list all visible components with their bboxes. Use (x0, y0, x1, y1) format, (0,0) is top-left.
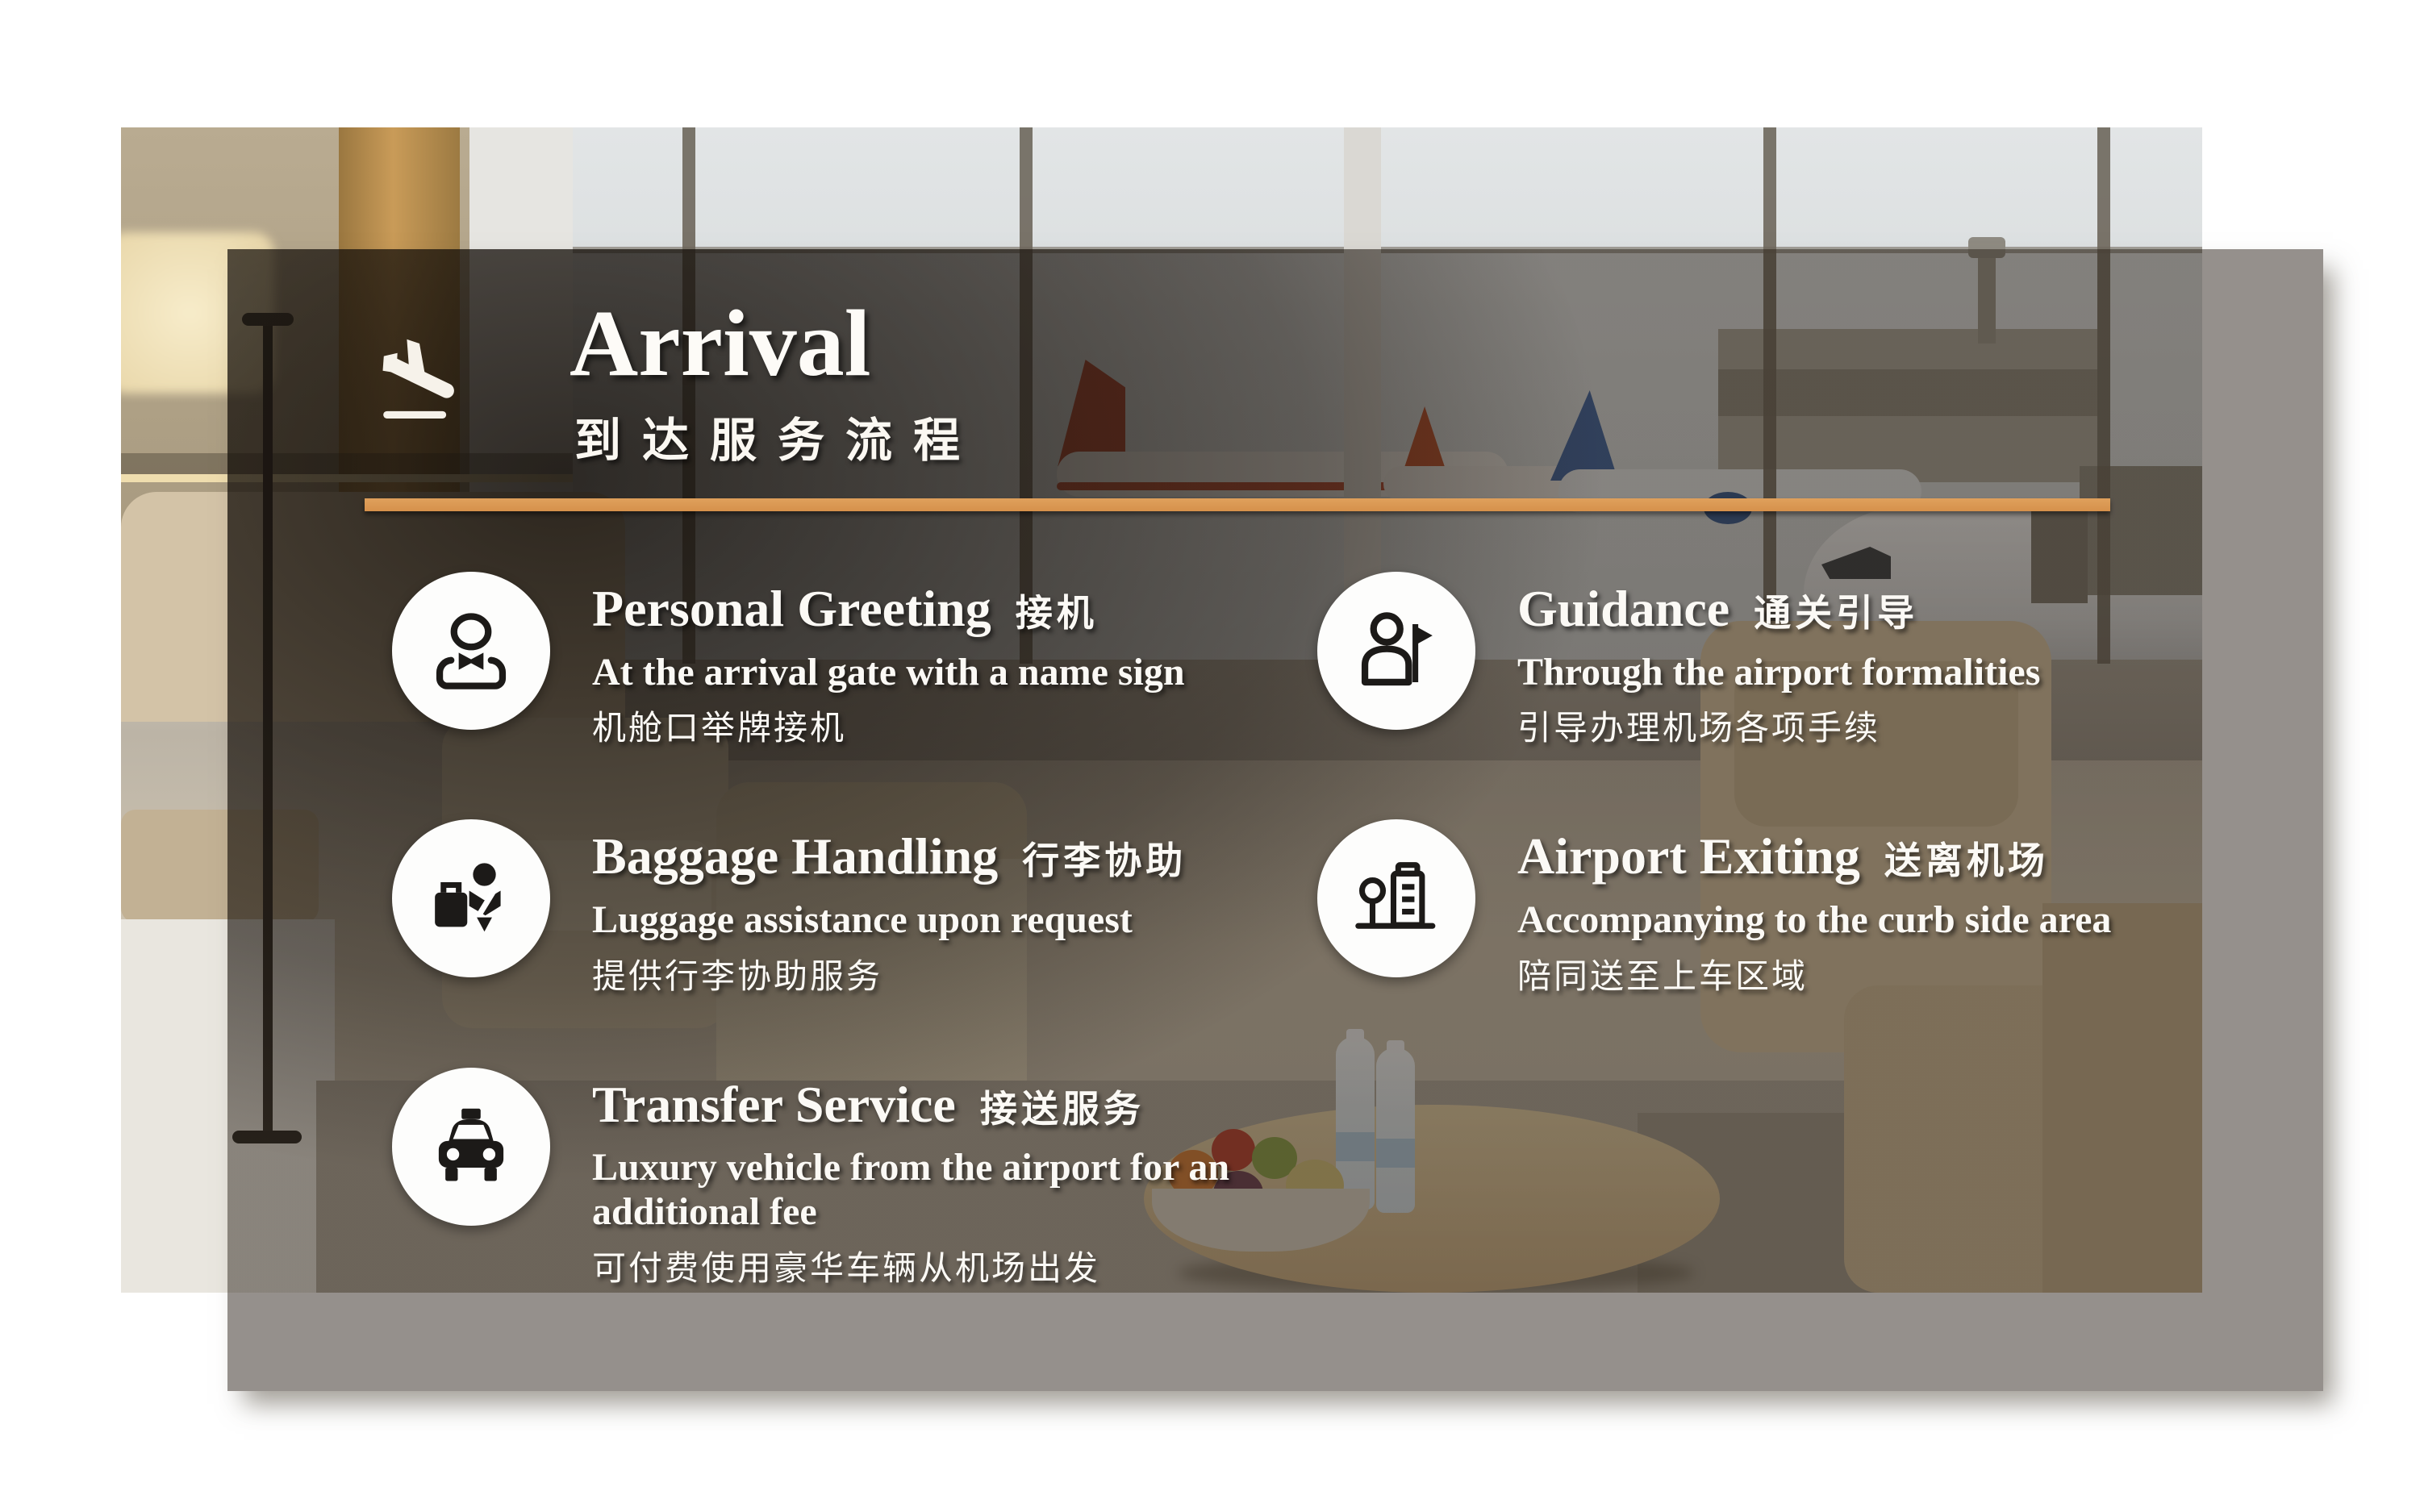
service-desc: Luggage assistance upon request (592, 898, 1187, 943)
service-icon-circle (1317, 819, 1475, 977)
service-title-zh: 接送服务 (980, 1089, 1145, 1130)
service-title-zh: 送离机场 (1884, 840, 2049, 881)
service-title: Baggage Handling行李协助 (592, 827, 1187, 885)
service-desc: At the arrival gate with a name sign (592, 651, 1185, 695)
service-icon-circle (1317, 572, 1475, 730)
service-item: Personal Greeting接机 At the arrival gate … (392, 572, 1317, 750)
service-text: Airport Exiting送离机场 Accompanying to the … (1517, 819, 2111, 998)
city-icon (1349, 851, 1444, 946)
service-desc-zh: 可付费使用豪华车辆从机场出发 (592, 1241, 1262, 1290)
baggage-icon (423, 851, 519, 946)
service-title-en: Personal Greeting (592, 580, 991, 637)
service-title: Guidance通关引导 (1517, 580, 2040, 638)
service-title: Personal Greeting接机 (592, 580, 1185, 638)
service-title-zh: 通关引导 (1754, 593, 1918, 634)
service-item: Baggage Handling行李协助 Luggage assistance … (392, 819, 1317, 998)
flight-land-icon (378, 333, 482, 428)
service-title-en: Transfer Service (592, 1076, 956, 1133)
service-title: Transfer Service接送服务 (592, 1076, 1262, 1134)
service-text: Personal Greeting接机 At the arrival gate … (592, 572, 1185, 750)
service-title: Airport Exiting送离机场 (1517, 827, 2111, 885)
service-icon-circle (392, 819, 550, 977)
page-subtitle-zh: 到达服务流程 (574, 402, 981, 470)
service-desc: Luxury vehicle from the airport for an a… (592, 1146, 1262, 1234)
service-item: Guidance通关引导 Through the airport formali… (1317, 572, 2320, 750)
service-desc-zh: 机舱口举牌接机 (592, 701, 1185, 750)
service-icon-circle (392, 572, 550, 730)
service-title-zh: 接机 (1016, 593, 1098, 634)
service-desc: Accompanying to the curb side area (1517, 898, 2111, 943)
service-text: Guidance通关引导 Through the airport formali… (1517, 572, 2040, 750)
concierge-icon (423, 603, 519, 698)
service-item: Transfer Service接送服务 Luxury vehicle from… (392, 1068, 1317, 1290)
service-desc-zh: 引导办理机场各项手续 (1517, 701, 2040, 750)
guide-flag-icon (1349, 603, 1444, 698)
slide-page: Arrival 到达服务流程 Personal Greeting接机 At th… (0, 0, 2420, 1512)
service-desc-zh: 提供行李协助服务 (592, 949, 1187, 998)
service-desc-zh: 陪同送至上车区域 (1517, 949, 2111, 998)
service-icon-circle (392, 1068, 550, 1226)
service-item: Airport Exiting送离机场 Accompanying to the … (1317, 819, 2320, 998)
services-grid: Personal Greeting接机 At the arrival gate … (392, 572, 2320, 1290)
service-title-en: Baggage Handling (592, 827, 998, 885)
service-text: Transfer Service接送服务 Luxury vehicle from… (592, 1068, 1262, 1290)
overlay-panel: Arrival 到达服务流程 Personal Greeting接机 At th… (227, 249, 2323, 1391)
service-title-zh: 行李协助 (1022, 840, 1187, 881)
service-title-en: Airport Exiting (1517, 827, 1860, 885)
taxi-icon (423, 1099, 519, 1194)
service-text: Baggage Handling行李协助 Luggage assistance … (592, 819, 1187, 998)
accent-divider (365, 498, 2110, 511)
service-title-en: Guidance (1517, 580, 1729, 637)
service-desc: Through the airport formalities (1517, 651, 2040, 695)
page-title: Arrival (570, 291, 871, 396)
